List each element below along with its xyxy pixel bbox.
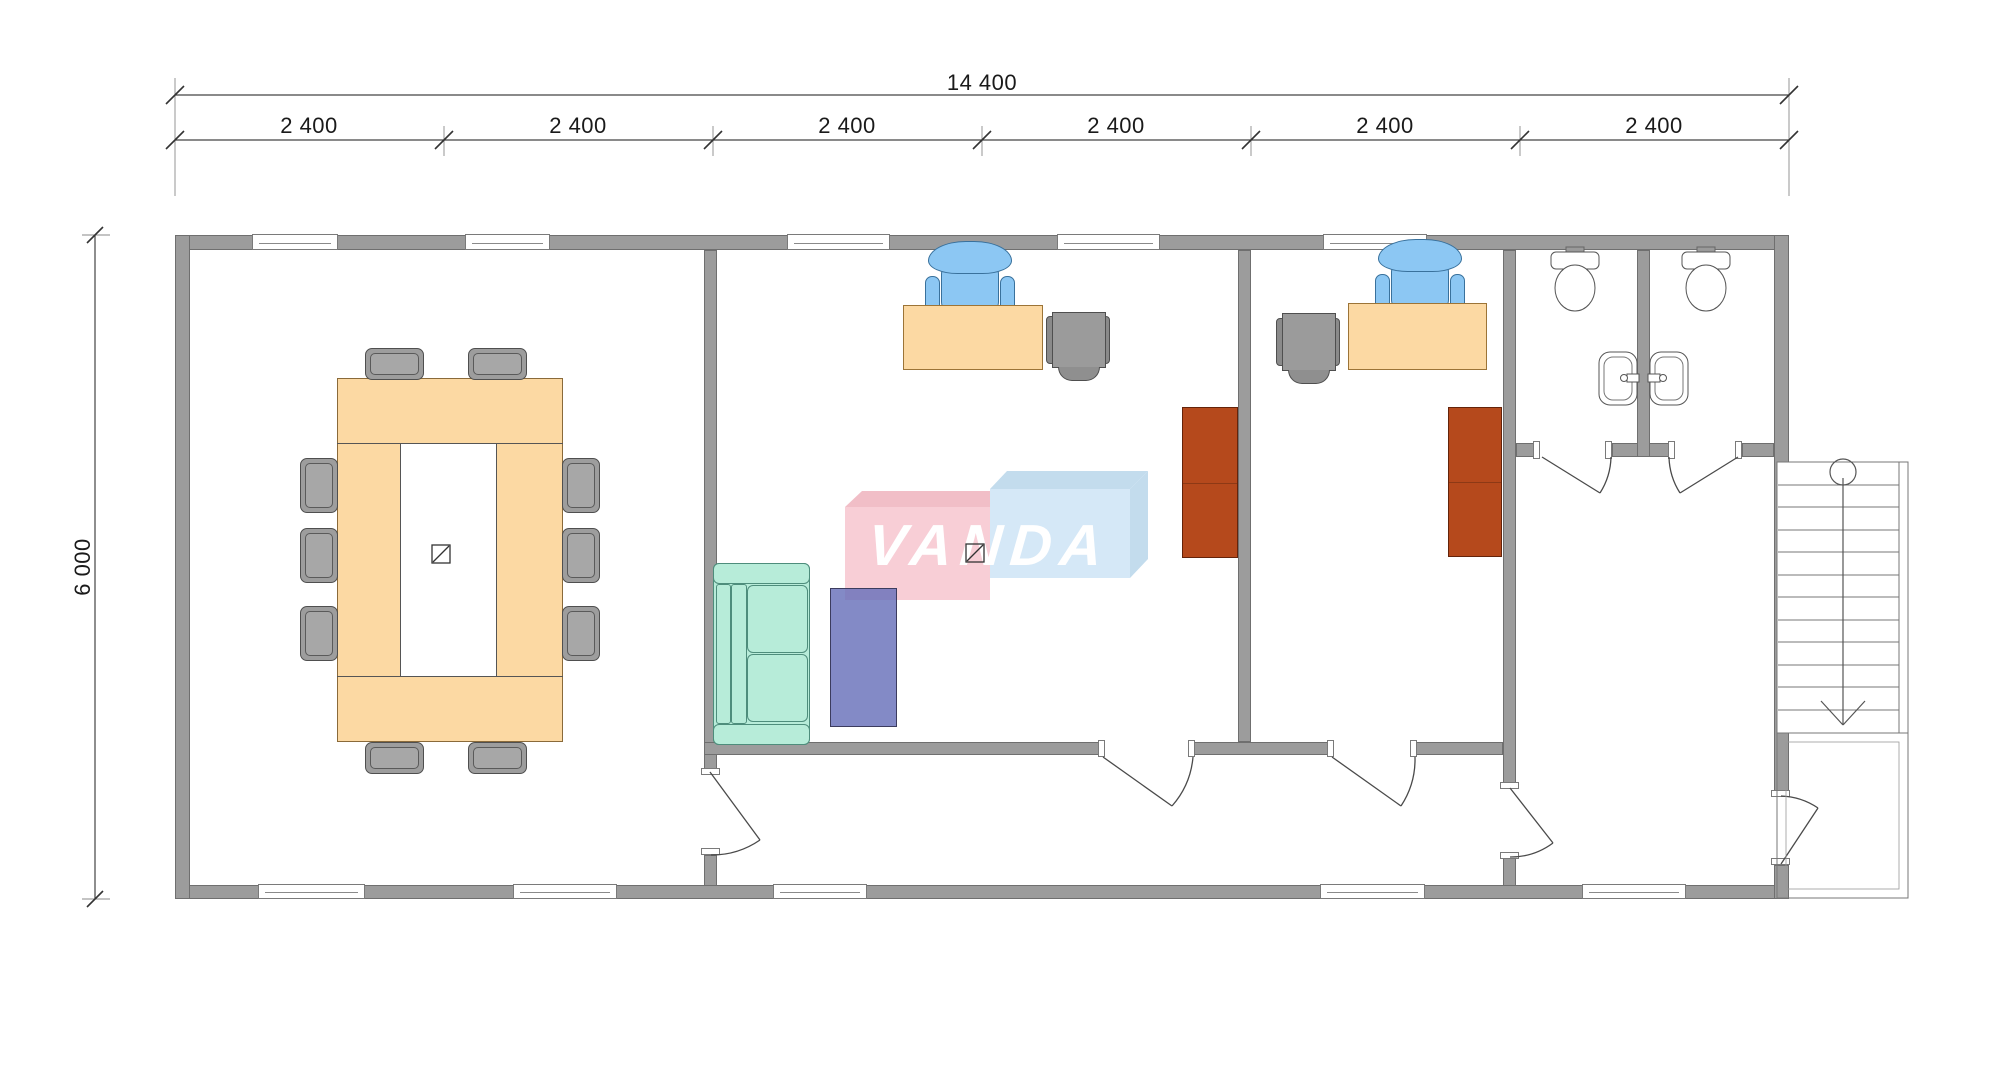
toilet (1682, 247, 1730, 311)
sink (1599, 352, 1639, 405)
sink (1648, 352, 1688, 405)
plan-symbols (0, 0, 2000, 1076)
floor-plan-canvas: 14 400 2 400 2 400 2 400 2 400 2 400 2 4… (0, 0, 2000, 1076)
floor-symbol (432, 544, 984, 563)
toilet (1551, 247, 1599, 311)
door-swings (710, 457, 1818, 864)
